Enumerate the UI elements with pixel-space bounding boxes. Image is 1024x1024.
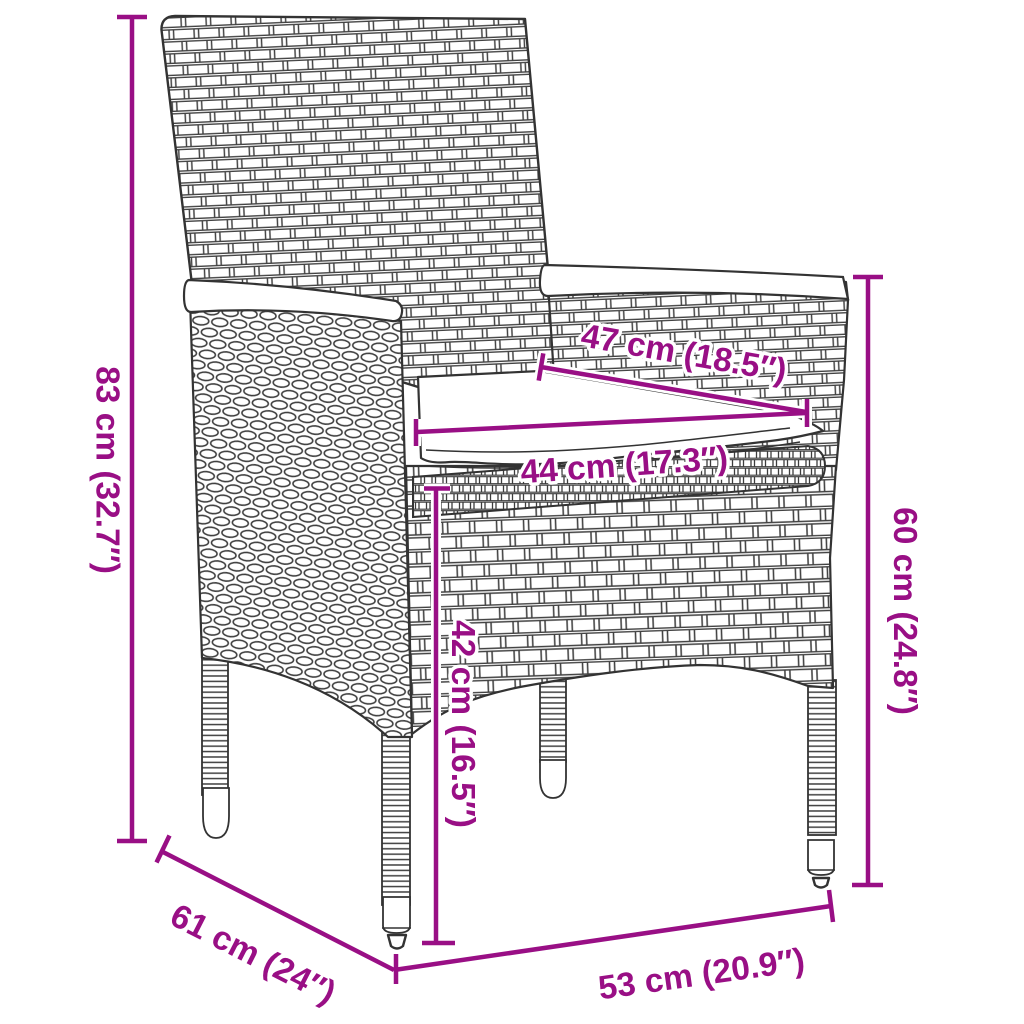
svg-text:42 cm (16.5″): 42 cm (16.5″): [444, 620, 481, 828]
svg-text:61 cm (24″): 61 cm (24″): [164, 897, 341, 1012]
svg-text:60 cm (24.8″): 60 cm (24.8″): [886, 507, 923, 715]
svg-text:53 cm (20.9″): 53 cm (20.9″): [596, 942, 807, 1008]
svg-text:83 cm (32.7″): 83 cm (32.7″): [89, 366, 126, 574]
